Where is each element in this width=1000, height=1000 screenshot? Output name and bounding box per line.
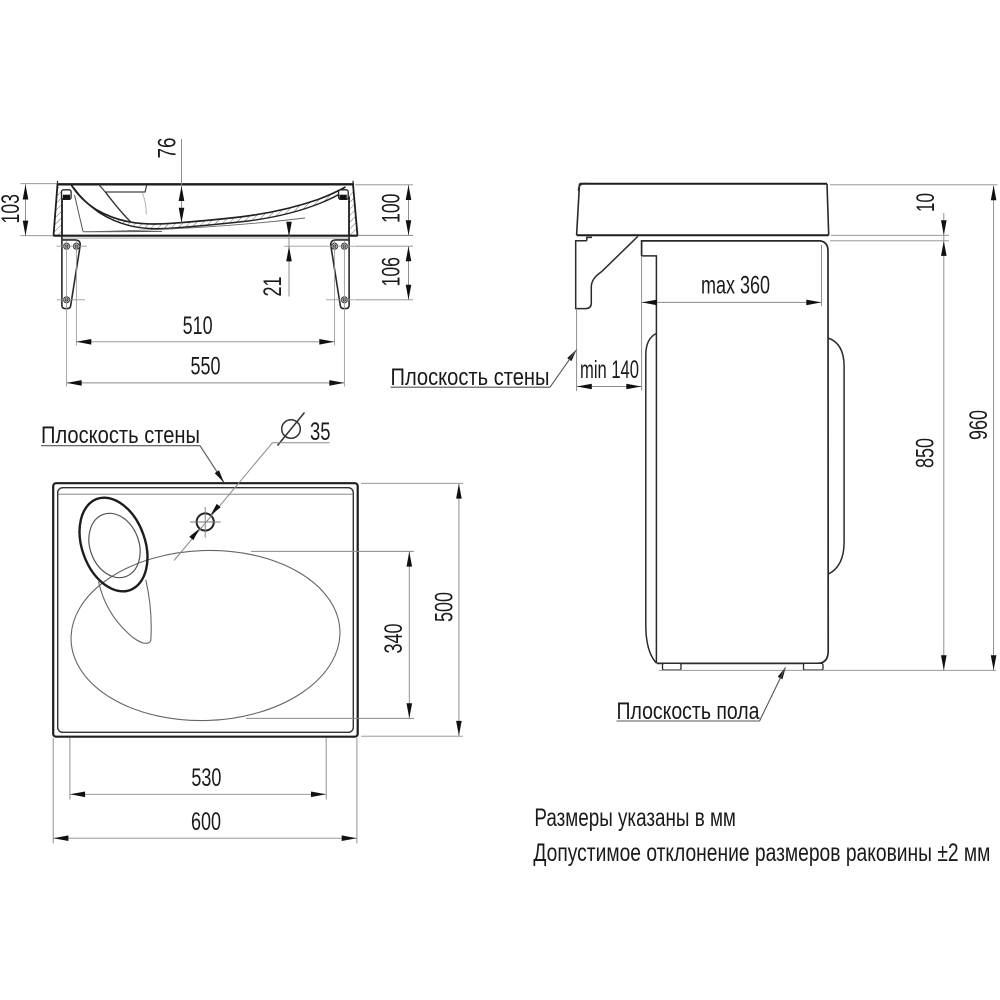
svg-text:min 140: min 140 [580,356,639,384]
svg-text:Размеры указаны в мм: Размеры указаны в мм [534,804,736,832]
svg-text:10: 10 [912,193,940,212]
svg-text:Плоскость стены: Плоскость стены [41,422,200,449]
svg-text:500: 500 [431,592,459,622]
svg-text:106: 106 [378,257,406,287]
svg-text:Допустимое отклонение размеров: Допустимое отклонение размеров раковины … [533,839,990,867]
svg-text:530: 530 [191,764,221,792]
svg-text:103: 103 [0,194,25,224]
svg-text:850: 850 [912,438,940,468]
svg-text:340: 340 [380,624,408,654]
svg-text:960: 960 [965,410,993,440]
svg-text:600: 600 [191,808,221,836]
svg-text:100: 100 [378,194,406,224]
svg-text:21: 21 [259,277,287,297]
svg-text:76: 76 [154,138,182,159]
svg-text:max 360: max 360 [701,272,770,300]
svg-text:550: 550 [191,353,221,381]
svg-text:35: 35 [310,418,331,446]
svg-text:510: 510 [183,312,213,340]
